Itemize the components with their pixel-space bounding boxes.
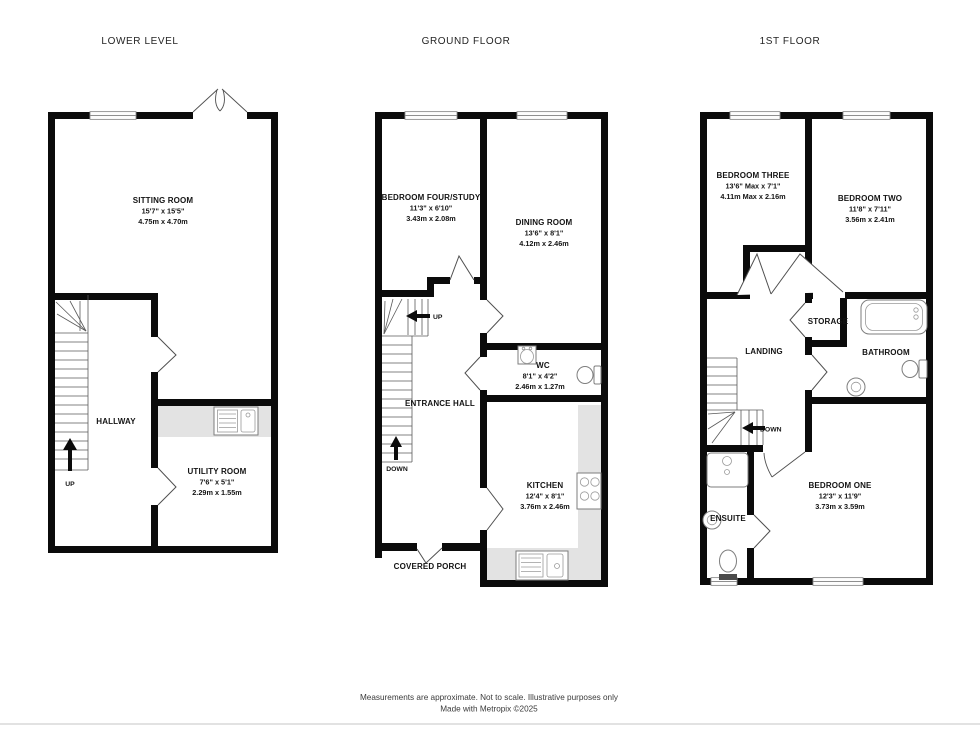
wc-door [465,357,480,390]
wc-label: WC [536,361,550,370]
kitchen-label: KITCHEN [527,481,564,490]
bedroom-three-imperial: 13'6" Max x 7'1" [725,182,780,191]
window [90,112,136,120]
bedroom-four-label: BEDROOM FOUR/STUDY [382,193,481,202]
shower-icon [707,453,748,487]
down-arrow [390,436,402,460]
bedroom-three-label: BEDROOM THREE [716,171,790,180]
hallway-label: HALLWAY [96,417,136,426]
sitting-room-metric: 4.75m x 4.70m [138,217,188,226]
floorplan-page: LOWER LEVEL GROUND FLOOR 1ST FLOOR [0,0,980,751]
wc-imperial: 8'1" x 4'2" [523,372,558,381]
bedroom-three-metric: 4.11m Max x 2.16m [720,192,786,201]
ensuite-door [754,515,770,548]
wc-sink-icon [518,346,536,364]
porch-door [417,548,442,563]
ground-floor-title: GROUND FLOOR [422,36,511,47]
ensuite-toilet-icon [719,550,737,580]
up-arrow [406,310,430,322]
dining-room-label: DINING ROOM [516,218,573,227]
kitchen-door [487,488,503,530]
utility-imperial: 7'6" x 5'1" [200,478,235,487]
ground-down-label: DOWN [386,466,408,473]
entrance-hall-label: ENTRANCE HALL [405,399,475,408]
hob-icon [577,473,601,509]
covered-porch-label: COVERED PORCH [394,562,467,571]
wc-toilet-icon [577,366,601,384]
dining-room-metric: 4.12m x 2.46m [519,239,569,248]
bathroom-door [812,355,827,390]
bedroom-two-metric: 3.56m x 2.41m [845,215,895,224]
utility-label: UTILITY ROOM [188,467,247,476]
storage-door [790,303,805,337]
bedroom-two-imperial: 11'8" x 7'11" [849,205,891,214]
bathtub-icon [861,300,927,334]
ensuite-label: ENSUITE [710,514,746,523]
bedroom-four-door [450,256,474,280]
bedroom-four-imperial: 11'3" x 6'10" [410,204,452,213]
ground-up-label: UP [433,314,443,321]
up-arrow [63,438,77,471]
utility-metric: 2.29m x 1.55m [192,488,242,497]
kitchen-sink-icon [516,551,568,580]
disclaimer-line1: Measurements are approximate. Not to sca… [360,693,619,702]
kitchen-imperial: 12'4" x 8'1" [526,492,565,501]
sitting-room-label: SITTING ROOM [133,196,194,205]
first-down-label: DOWN [760,427,782,434]
bedroom-four-metric: 3.43m x 2.08m [406,214,456,223]
utility-door [158,468,176,505]
bedroom-one-metric: 3.73m x 3.59m [815,502,865,511]
wc-metric: 2.46m x 1.27m [515,382,565,391]
bedroom-one-door [764,452,805,477]
bathroom-sink-icon [847,378,865,396]
double-door [193,89,247,112]
first-floor-title: 1ST FLOOR [760,36,821,47]
disclaimer-line2: Made with Metropix ©2025 [440,705,538,714]
floorplan-canvas: LOWER LEVEL GROUND FLOOR 1ST FLOOR [0,0,980,751]
lower-up-label: UP [65,481,75,488]
storage-label: STORAGE [808,317,849,326]
utility-sink-icon [214,407,258,435]
ground-staircase [382,299,428,462]
sitting-room-imperial: 15'7" x 15'5" [142,207,185,216]
bedroom-two-label: BEDROOM TWO [838,194,902,203]
bedroom-one-label: BEDROOM ONE [809,481,872,490]
dining-room-imperial: 13'6" x 8'1" [525,229,564,238]
lower-level-title: LOWER LEVEL [101,36,178,47]
bathroom-label: BATHROOM [862,348,910,357]
first-floor-plan: BEDROOM THREE 13'6" Max x 7'1" 4.11m Max… [700,112,933,586]
image-bottom-edge [0,723,980,725]
dining-room-door [487,300,503,333]
landing-label: LANDING [745,347,783,356]
ground-floor-plan: BEDROOM FOUR/STUDY 11'3" x 6'10" 3.43m x… [375,112,608,587]
sitting-room-door [158,337,176,372]
bathroom-toilet-icon [902,360,927,378]
bedroom-one-imperial: 12'3" x 11'9" [819,492,861,501]
kitchen-metric: 3.76m x 2.46m [520,502,570,511]
lower-level-plan: SITTING ROOM 15'7" x 15'5" 4.75m x 4.70m… [48,89,278,553]
landing-double-doors [737,254,843,295]
first-staircase [707,358,763,445]
